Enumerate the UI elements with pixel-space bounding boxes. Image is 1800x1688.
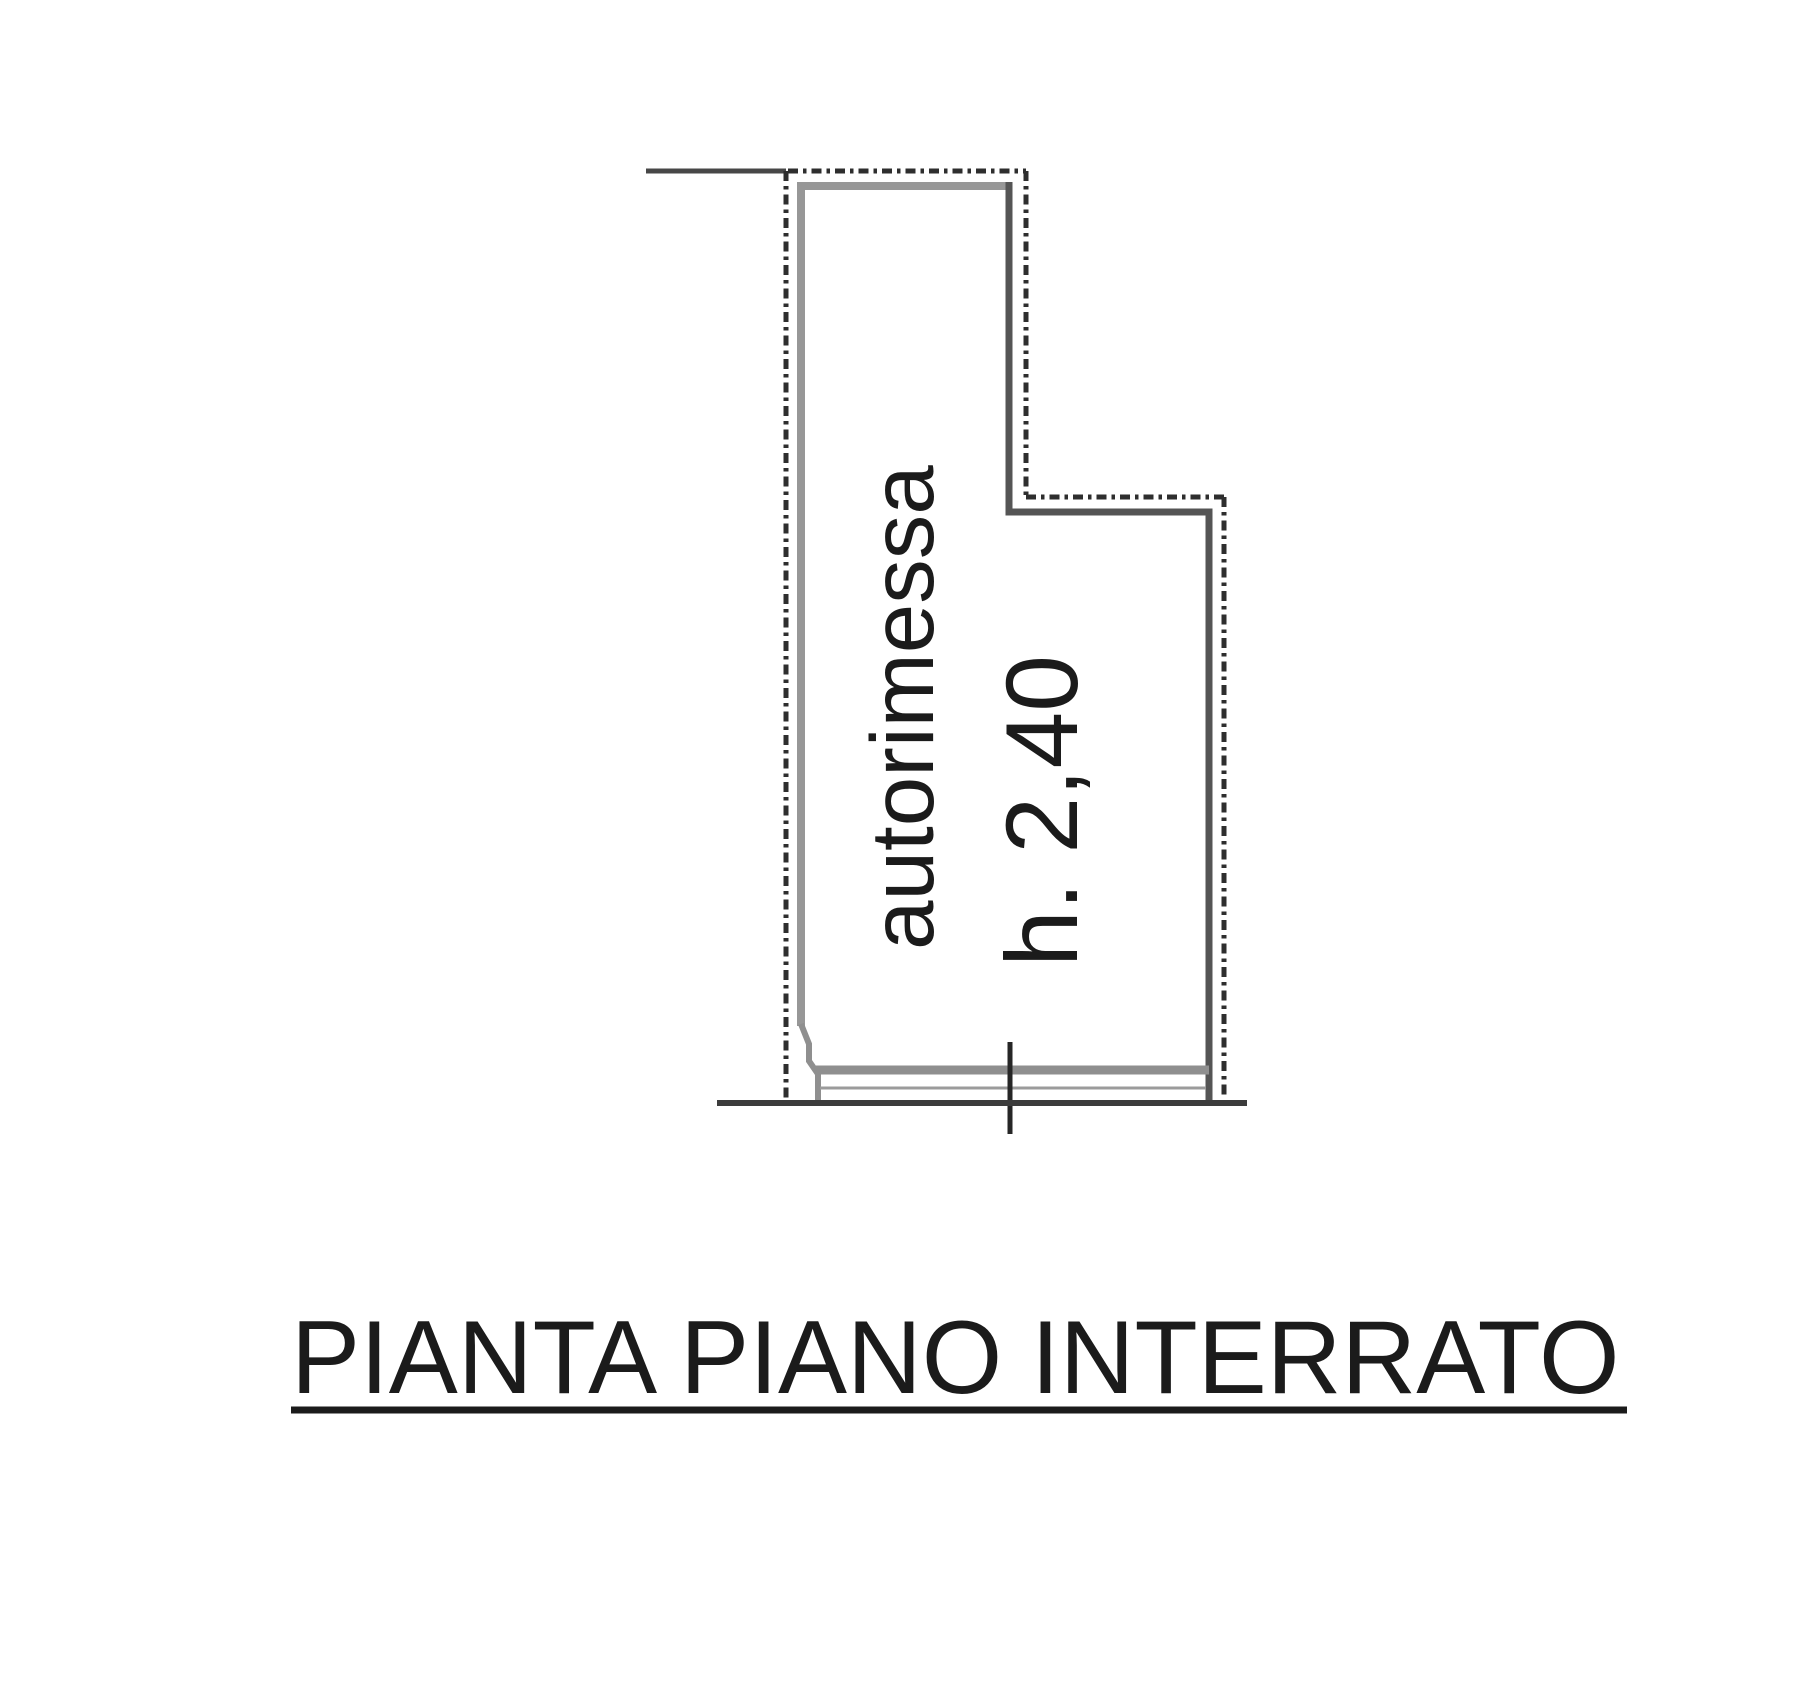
svg-text:PIANTA PIANO INTERRATO: PIANTA PIANO INTERRATO (291, 1299, 1619, 1415)
svg-text:h. 2,40: h. 2,40 (985, 655, 1099, 967)
svg-text:autorimessa: autorimessa (852, 465, 952, 950)
